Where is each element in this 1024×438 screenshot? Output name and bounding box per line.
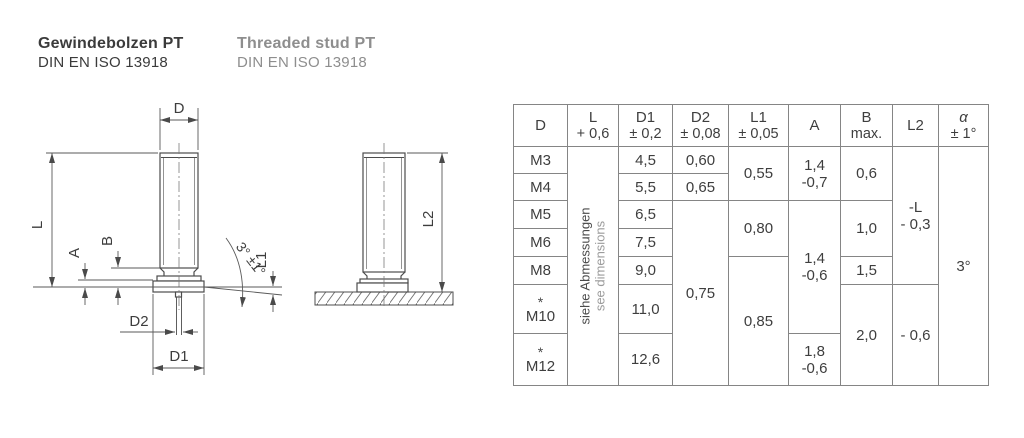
cell-d1-m4: 5,5 <box>619 174 673 201</box>
header-alpha: α± 1° <box>939 105 989 147</box>
cell-a-m3-m4: 1,4-0,7 <box>789 147 841 201</box>
cell-l1-m8-m12: 0,85 <box>729 257 789 386</box>
label-d2: D2 <box>129 313 148 330</box>
standard-en: DIN EN ISO 13918 <box>237 53 375 72</box>
label-d1: D1 <box>169 348 188 365</box>
cell-alpha-all: 3° <box>939 147 989 386</box>
header-l2: L2 <box>893 105 939 147</box>
footnote-star: * <box>514 344 567 358</box>
header-a: A <box>789 105 841 147</box>
header-d2: D2± 0,08 <box>673 105 729 147</box>
label-l: L <box>30 221 46 229</box>
label-b: B <box>99 236 116 246</box>
note-german: siehe Abmessungen <box>578 207 593 324</box>
cell-d1-m12: 12,6 <box>619 334 673 386</box>
cell-d1-m8: 9,0 <box>619 257 673 285</box>
cell-a-m12: 1,8-0,6 <box>789 334 841 386</box>
label-l1: L1 <box>253 252 270 269</box>
header-b: Bmax. <box>841 105 893 147</box>
label-l2: L2 <box>420 211 437 228</box>
title-english: Threaded stud PT DIN EN ISO 13918 <box>237 34 375 72</box>
cell-d1-m5: 6,5 <box>619 201 673 229</box>
cell-b-m8: 1,5 <box>841 257 893 285</box>
dimension-table: D L+ 0,6 D1± 0,2 D2± 0,08 L1± 0,05 A Bma… <box>513 104 989 386</box>
cell-d2-m3: 0,60 <box>673 147 729 174</box>
dim-l <box>33 153 282 287</box>
header-l: L+ 0,6 <box>568 105 619 147</box>
cell-d-m10: * M10 <box>514 285 568 334</box>
cell-a-m5-m10: 1,4-0,6 <box>789 201 841 334</box>
note-english: see dimensions <box>593 207 608 324</box>
cell-d1-m10: 11,0 <box>619 285 673 334</box>
row-m3: M3 siehe Abmessungen see dimensions 4,5 … <box>514 147 989 174</box>
cell-b-m5-m6: 1,0 <box>841 201 893 257</box>
technical-drawing: D L A B 3° ±1° L1 D2 D1 <box>30 95 460 407</box>
label-d: D <box>174 100 185 117</box>
title-german: Gewindebolzen PT DIN EN ISO 13918 <box>38 34 183 72</box>
standard-de: DIN EN ISO 13918 <box>38 53 183 72</box>
stud-side-view <box>357 153 408 292</box>
cell-d-m8: M8 <box>514 257 568 285</box>
cell-d1-m3: 4,5 <box>619 147 673 174</box>
cell-d2-m5-m12: 0,75 <box>673 201 729 386</box>
cell-d1-m6: 7,5 <box>619 229 673 257</box>
cell-d-m6: M6 <box>514 229 568 257</box>
header-l1: L1± 0,05 <box>729 105 789 147</box>
cell-l2-m3-m8: -L- 0,3 <box>893 147 939 285</box>
header-row: D L+ 0,6 D1± 0,2 D2± 0,08 L1± 0,05 A Bma… <box>514 105 989 147</box>
product-name-de: Gewindebolzen PT <box>38 34 183 53</box>
cell-d-m12: * M12 <box>514 334 568 386</box>
product-name-en: Threaded stud PT <box>237 34 375 53</box>
header-d: D <box>514 105 568 147</box>
page: { "title": { "de_name": "Gewindebolzen P… <box>0 0 1024 438</box>
stud-front-view <box>153 153 204 335</box>
cell-l1-m5-m6: 0,80 <box>729 201 789 257</box>
dim-a <box>78 263 153 305</box>
cell-d2-m4: 0,65 <box>673 174 729 201</box>
footnote-star: * <box>514 294 567 308</box>
cell-l1-m3-m4: 0,55 <box>729 147 789 201</box>
cell-l2-m10-m12: - 0,6 <box>893 285 939 386</box>
cell-d-m5: M5 <box>514 201 568 229</box>
cell-b-m3-m4: 0,6 <box>841 147 893 201</box>
cell-b-m10-m12: 2,0 <box>841 285 893 386</box>
cell-l-note: siehe Abmessungen see dimensions <box>568 147 619 386</box>
cell-d-m4: M4 <box>514 174 568 201</box>
label-a: A <box>66 248 83 258</box>
cell-d-m3: M3 <box>514 147 568 174</box>
header-d1: D1± 0,2 <box>619 105 673 147</box>
